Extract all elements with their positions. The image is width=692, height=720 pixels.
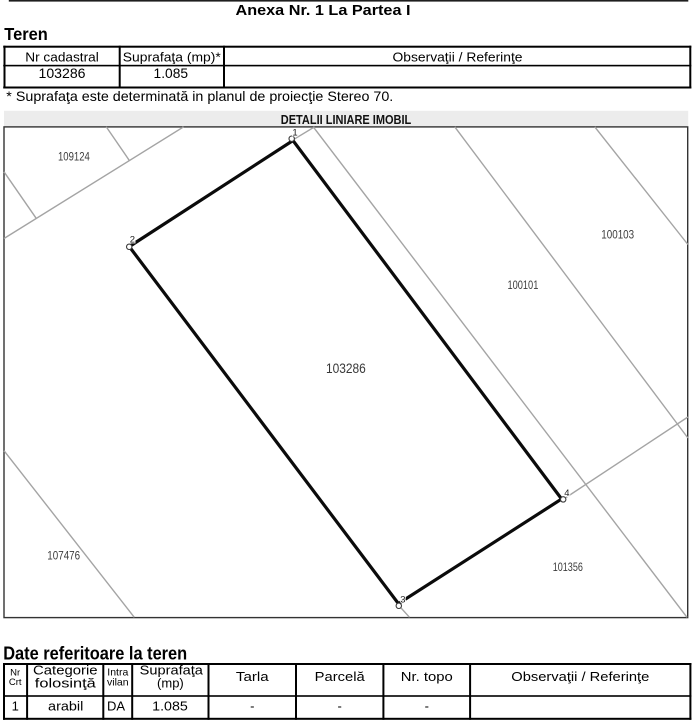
svg-text:arabil: arabil: [48, 698, 83, 713]
svg-text:1.085: 1.085: [154, 66, 189, 81]
svg-text:4: 4: [564, 488, 569, 499]
svg-text:-: -: [338, 698, 342, 713]
svg-text:Date referitoare la teren: Date referitoare la teren: [3, 644, 187, 664]
svg-text:folosinţă: folosinţă: [35, 675, 97, 690]
svg-text:1: 1: [12, 698, 19, 713]
svg-text:Observaţii / Referinţe: Observaţii / Referinţe: [393, 49, 523, 64]
svg-text:Tarla: Tarla: [236, 669, 270, 684]
svg-text:-: -: [250, 698, 254, 713]
svg-text:vilan: vilan: [107, 677, 129, 689]
svg-text:100101: 100101: [507, 278, 538, 292]
svg-text:2: 2: [130, 235, 135, 246]
svg-text:103286: 103286: [326, 361, 366, 376]
svg-text:100103: 100103: [601, 227, 634, 241]
svg-text:(mp): (mp): [157, 675, 184, 690]
svg-text:103286: 103286: [39, 66, 86, 81]
svg-text:107476: 107476: [47, 548, 80, 562]
svg-text:Anexa Nr. 1 La Partea I: Anexa Nr. 1 La Partea I: [236, 2, 411, 19]
svg-text:101356: 101356: [553, 560, 583, 574]
svg-text:DETALII LINIARE IMOBIL: DETALII LINIARE IMOBIL: [281, 112, 412, 127]
svg-text:1.085: 1.085: [152, 698, 188, 713]
svg-text:3: 3: [400, 595, 405, 606]
svg-text:Crt: Crt: [9, 677, 22, 688]
svg-text:Observaţii / Referinţe: Observaţii / Referinţe: [511, 669, 649, 684]
svg-text:DA: DA: [107, 698, 125, 713]
svg-text:Nr. topo: Nr. topo: [401, 669, 453, 684]
svg-text:-: -: [425, 698, 429, 713]
svg-text:Nr cadastral: Nr cadastral: [25, 49, 99, 64]
svg-text:1: 1: [292, 128, 297, 139]
svg-text:Teren: Teren: [4, 24, 48, 44]
svg-text:* Suprafaţa este determinată i: * Suprafaţa este determinată in planul d…: [6, 88, 393, 104]
svg-text:Suprafaţa (mp)*: Suprafaţa (mp)*: [123, 49, 221, 64]
svg-text:109124: 109124: [58, 149, 90, 163]
svg-text:Parcelă: Parcelă: [315, 669, 366, 684]
